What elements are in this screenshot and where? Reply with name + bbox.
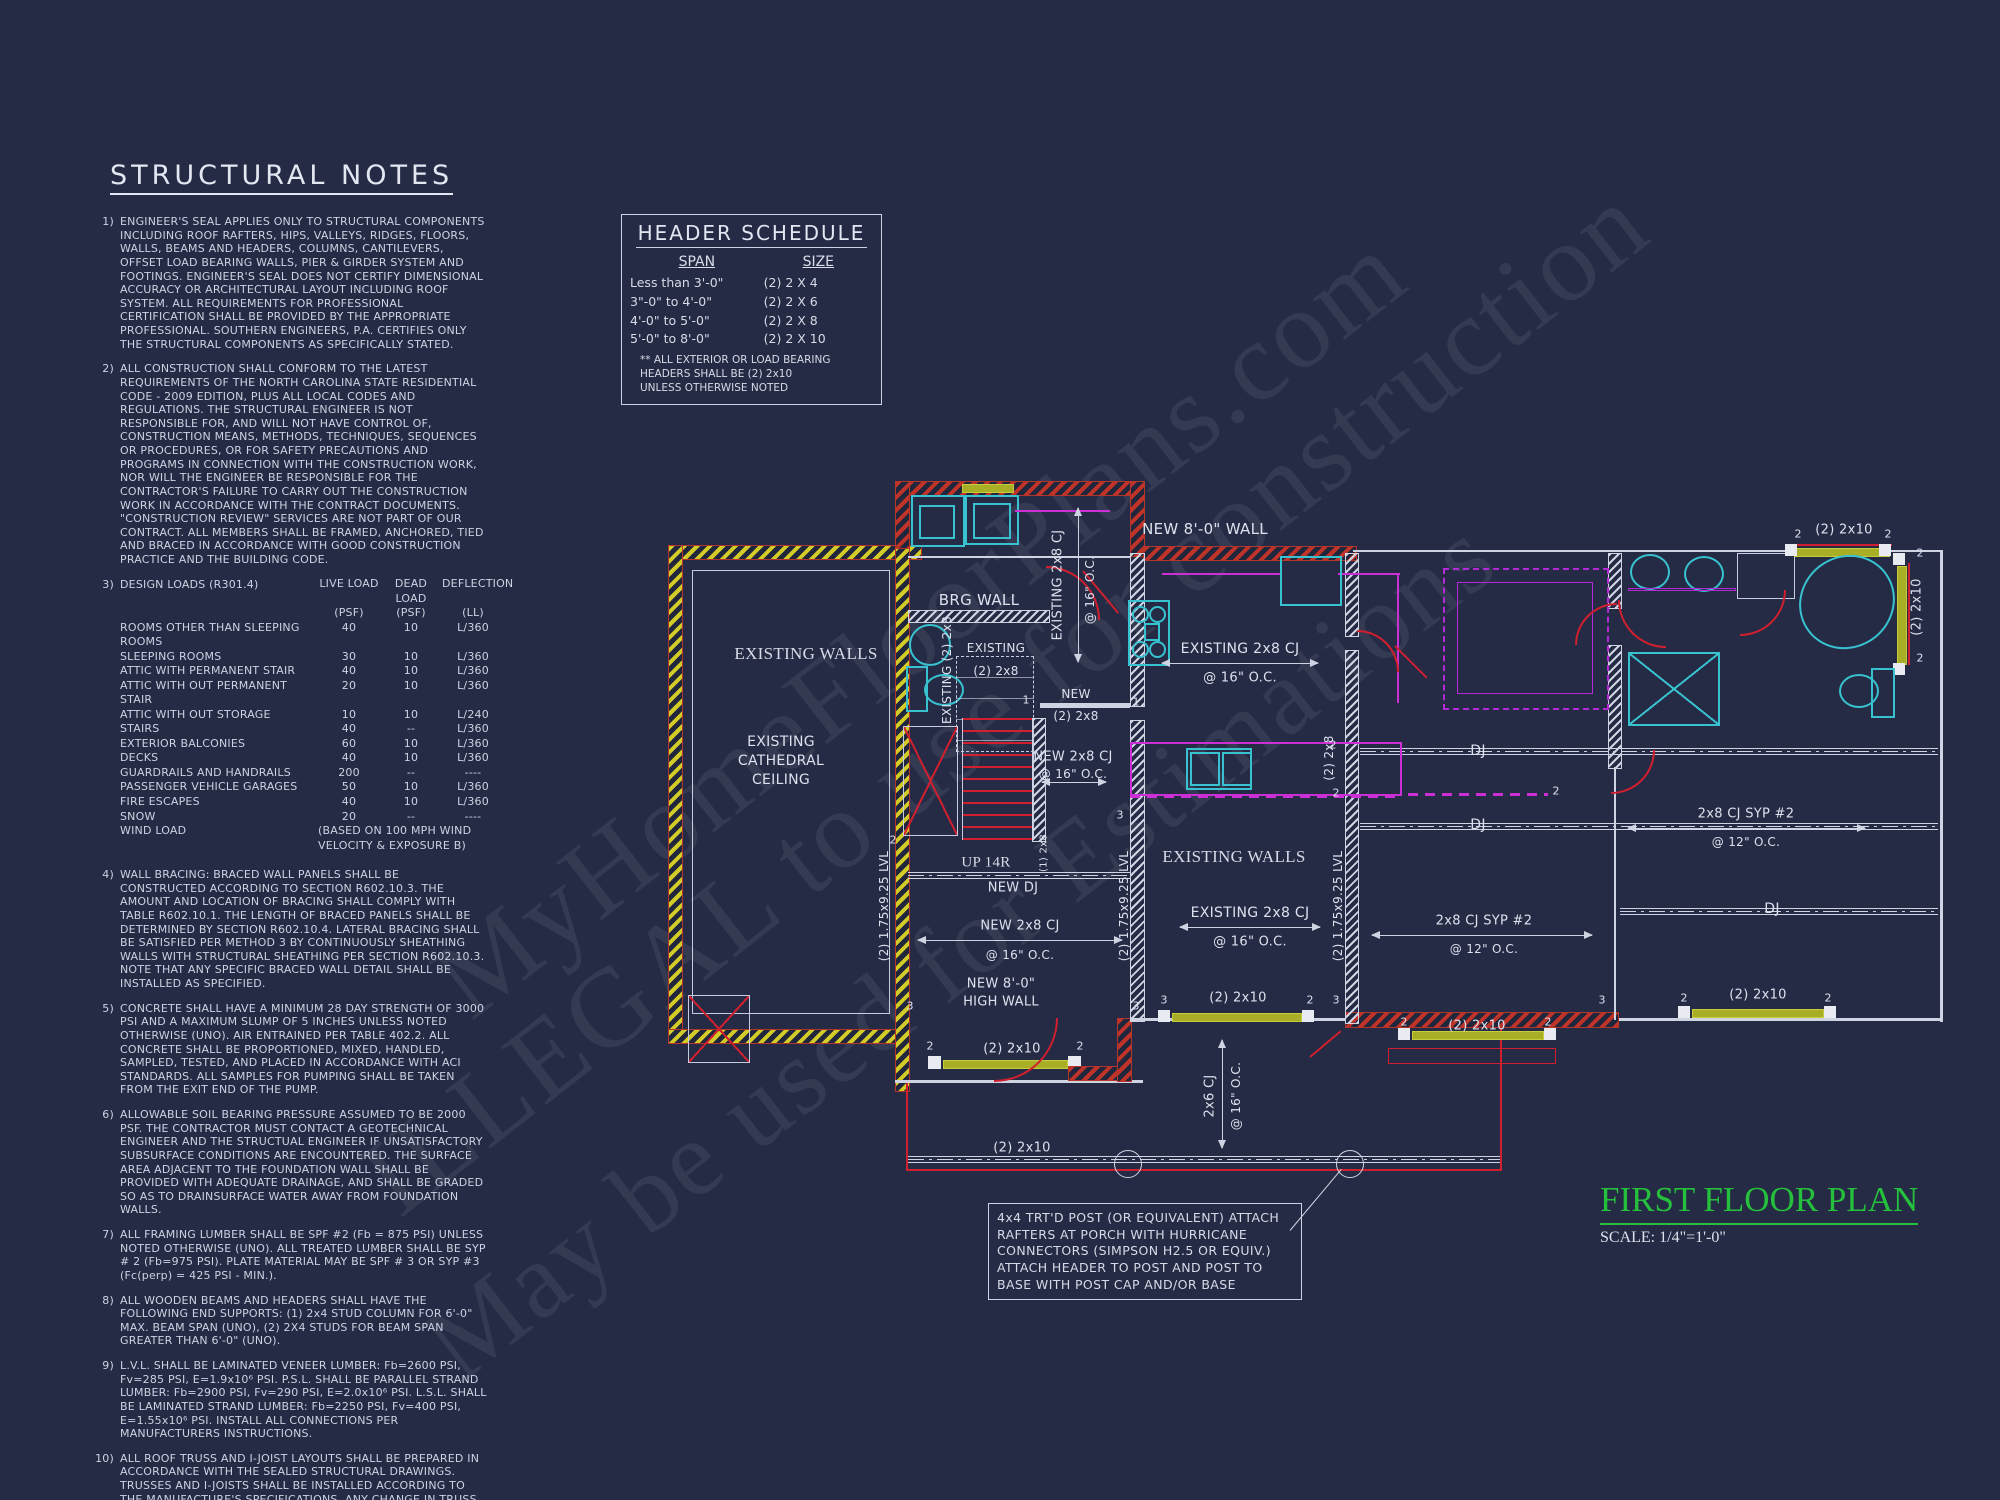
- closet-inner: [1457, 582, 1593, 694]
- porch-steps: [1388, 1048, 1556, 1064]
- plan-annotation: (2) 2x10: [1448, 1019, 1505, 1034]
- post-count-marker: 3: [1161, 994, 1168, 1007]
- plan-graphic: GUARDRAILS AND HANDRAILS: [120, 766, 318, 781]
- post-count-marker: 2: [1333, 787, 1340, 800]
- design-load-row: SLEEPING ROOMS3010L/360: [120, 650, 504, 665]
- structural-note: 10)ALL ROOF TRUSS AND I-JOIST LAYOUTS SH…: [88, 1452, 488, 1500]
- plan-graphic: 30: [318, 650, 380, 665]
- post-count-marker: 2: [1307, 994, 1314, 1007]
- plan-graphic: ATTIC WITH PERMANENT STAIR: [120, 664, 318, 679]
- plan-graphic: (2) 2 X 10: [764, 330, 873, 349]
- plan-graphic: WIND LOAD: [120, 824, 318, 853]
- note-number: 10): [88, 1452, 120, 1500]
- header-2x10: [1897, 566, 1907, 665]
- plan-graphic: --: [380, 766, 442, 781]
- design-load-row: SNOW20------: [120, 810, 504, 825]
- wall-line: [1614, 767, 1616, 1020]
- plan-annotation: NEW 2x8 CJ: [1033, 750, 1112, 765]
- plan-annotation: EXISTING 2x8 CJ: [1051, 530, 1066, 641]
- design-load-row: STAIRS40--L/360: [120, 722, 504, 737]
- porch-post: [1114, 1150, 1142, 1178]
- post-count-marker: 1: [1133, 696, 1140, 709]
- plan-annotation: 2x8 CJ SYP #2: [1436, 914, 1533, 929]
- design-load-row: ROOMS OTHER THAN SLEEPING ROOMS4010L/360: [120, 621, 504, 650]
- note-number: 9): [88, 1359, 120, 1441]
- post-square: [1158, 1010, 1170, 1022]
- plan-annotation: HIGH WALL: [963, 995, 1039, 1010]
- plan-annotation: (2) 2x10: [983, 1042, 1040, 1057]
- design-load-row: FIRE ESCAPES4010L/360: [120, 795, 504, 810]
- counter-line: [1397, 573, 1399, 703]
- design-loads-table: LIVE LOADDEAD LOADDEFLECTION(PSF)(PSF)(L…: [120, 577, 504, 853]
- post-note: 4x4 TRT'D POST (OR EQUIVALENT) ATTACH RA…: [988, 1203, 1302, 1300]
- plan-annotation: NEW 2x8 CJ: [980, 919, 1059, 934]
- plan-annotation: DJ: [1470, 743, 1486, 759]
- window-header: [962, 484, 1014, 493]
- note-text: DESIGN LOADS (R301.4)LIVE LOADDEAD LOADD…: [120, 578, 504, 857]
- design-load-row: GUARDRAILS AND HANDRAILS200------: [120, 766, 504, 781]
- plan-graphic: 10: [380, 751, 442, 766]
- wall-existing: [668, 545, 922, 560]
- post-square: [1893, 553, 1905, 565]
- note-text: ALLOWABLE SOIL BEARING PRESSURE ASSUMED …: [120, 1108, 488, 1217]
- plan-graphic: PASSENGER VEHICLE GARAGES: [120, 780, 318, 795]
- plan-graphic: (PSF): [318, 606, 380, 621]
- stair-x-box: [688, 995, 750, 1063]
- counter-line: [1015, 510, 1110, 512]
- header-schedule-title: HEADER SCHEDULE: [636, 221, 867, 248]
- post-square: [1398, 1028, 1410, 1040]
- plan-graphic: 40: [318, 795, 380, 810]
- plan-graphic: ATTIC WITH OUT PERMANENT STAIR: [120, 679, 318, 708]
- structural-note: 6)ALLOWABLE SOIL BEARING PRESSURE ASSUME…: [88, 1108, 488, 1217]
- post-count-marker: 2: [1825, 992, 1832, 1005]
- note-number: 1): [88, 215, 120, 351]
- plan-graphic: 10: [380, 795, 442, 810]
- wall-interior: [1345, 650, 1359, 1024]
- post-square: [1302, 1010, 1314, 1022]
- structural-note: 3)DESIGN LOADS (R301.4)LIVE LOADDEAD LOA…: [88, 578, 488, 857]
- header-schedule-rows: Less than 3'-0"(2) 2 X 43"-0" to 4'-0"(2…: [630, 274, 873, 349]
- plan-annotation: (2) 2x8: [1053, 709, 1098, 723]
- post-count-marker: 2: [1401, 1016, 1408, 1029]
- note-number: 2): [88, 362, 120, 566]
- beam-line: [1040, 703, 1130, 708]
- plan-graphic: [1627, 824, 1636, 832]
- note-number: 4): [88, 868, 120, 991]
- plan-graphic: (BASED ON 100 MPH WIND VELOCITY & EXPOSU…: [318, 824, 504, 853]
- toilet-tank: [1871, 668, 1895, 718]
- wall-line: [1940, 550, 1943, 1022]
- plan-annotation: @ 16" O.C.: [1213, 935, 1287, 950]
- header-schedule-footnote: ** ALL EXTERIOR OR LOAD BEARING HEADERS …: [640, 353, 873, 396]
- plan-graphic: Less than 3'-0": [630, 274, 764, 293]
- plan-annotation: EXISTING (2) 2x8: [940, 616, 954, 724]
- post-count-marker: 2: [1885, 528, 1892, 541]
- note-text: ALL WOODEN BEAMS AND HEADERS SHALL HAVE …: [120, 1294, 488, 1349]
- plan-graphic: L/360: [442, 722, 504, 737]
- plan-graphic: 5'-0" to 8'-0": [630, 330, 764, 349]
- post-count-marker: 2: [890, 834, 897, 847]
- plan-title: FIRST FLOOR PLAN: [1600, 1180, 1918, 1225]
- plan-graphic: L/360: [442, 679, 504, 708]
- structural-notes: STRUCTURAL NOTES 1)ENGINEER'S SEAL APPLI…: [88, 160, 488, 1500]
- structural-note: 9)L.V.L. SHALL BE LAMINATED VENEER LUMBE…: [88, 1359, 488, 1441]
- plan-graphic: 10: [380, 737, 442, 752]
- plan-graphic: 20: [318, 810, 380, 825]
- post-count-marker: 2: [1917, 547, 1924, 560]
- counter: [1130, 742, 1402, 796]
- porch-beam: [908, 1156, 1500, 1163]
- extent-arrow: [1162, 663, 1318, 664]
- structural-note: 8)ALL WOODEN BEAMS AND HEADERS SHALL HAV…: [88, 1294, 488, 1349]
- plan-graphic: L/360: [442, 650, 504, 665]
- plan-graphic: [1161, 659, 1170, 667]
- plan-graphic: L/360: [442, 780, 504, 795]
- chimney-x-box: [903, 726, 958, 836]
- header-schedule-columns: SPAN SIZE: [630, 254, 873, 270]
- plan-graphic: [120, 577, 318, 606]
- notes-title: STRUCTURAL NOTES: [110, 160, 453, 195]
- plan-annotation: (2) 2x10: [1815, 523, 1872, 538]
- plan-graphic: 10: [318, 708, 380, 723]
- header-schedule-row: 4'-0" to 5'-0"(2) 2 X 8: [630, 312, 873, 331]
- plan-graphic: [1312, 923, 1321, 931]
- extent-arrow: [1222, 1040, 1223, 1148]
- porch-post: [1336, 1150, 1364, 1178]
- header-2x10: [1172, 1013, 1302, 1022]
- plan-annotation: @ 16" O.C.: [1229, 1062, 1243, 1130]
- header-schedule-row: Less than 3'-0"(2) 2 X 4: [630, 274, 873, 293]
- note-text: ALL ROOF TRUSS AND I-JOIST LAYOUTS SHALL…: [120, 1452, 488, 1500]
- plan-graphic: DECKS: [120, 751, 318, 766]
- plan-annotation: EXISTING WALLS: [734, 644, 877, 664]
- plan-graphic: 40: [318, 751, 380, 766]
- plan-annotation: (2) 1.75x9.25 LVL: [1117, 851, 1131, 962]
- plan-graphic: [1218, 1039, 1226, 1048]
- plan-graphic: [1041, 778, 1050, 786]
- post-square: [1879, 544, 1891, 556]
- design-load-row: PASSENGER VEHICLE GARAGES5010L/360: [120, 780, 504, 795]
- joist-line-new-dj: [908, 872, 1130, 879]
- stove-panel: [1144, 623, 1160, 641]
- plan-annotation: (2) 2x10: [993, 1141, 1050, 1156]
- porch-edge: [906, 1169, 1502, 1171]
- plan-graphic: 40: [318, 664, 380, 679]
- plan-graphic: 10: [380, 780, 442, 795]
- plan-annotation: NEW 8'-0": [967, 977, 1035, 992]
- note-text: WALL BRACING: BRACED WALL PANELS SHALL B…: [120, 868, 488, 991]
- plan-annotation: UP 14R: [961, 855, 1010, 872]
- plan-graphic: ----: [442, 766, 504, 781]
- porch-edge: [1500, 1020, 1502, 1170]
- plan-graphic: ROOMS OTHER THAN SLEEPING ROOMS: [120, 621, 318, 650]
- plan-graphic: DEAD LOAD: [380, 577, 442, 606]
- kitchen-sink-bowl: [1222, 752, 1252, 786]
- wall-interior: [1345, 553, 1359, 637]
- post-count-marker: 2: [1553, 785, 1560, 798]
- plan-graphic: [1310, 659, 1319, 667]
- plan-annotation: (2) 2x10: [1209, 991, 1266, 1006]
- post-count-marker: 3: [1117, 809, 1124, 822]
- plan-graphic: L/360: [442, 751, 504, 766]
- plan-graphic: LIVE LOAD: [318, 577, 380, 606]
- plan-graphic: [1074, 507, 1082, 516]
- design-load-row: DECKS4010L/360: [120, 751, 504, 766]
- plan-annotation: 2x8 CJ SYP #2: [1698, 807, 1795, 822]
- plan-graphic: [1114, 936, 1123, 944]
- door-arc: [1611, 750, 1655, 794]
- plan-annotation: EXISTING 2x8 CJ: [1181, 641, 1300, 657]
- plan-graphic: [1371, 931, 1380, 939]
- note-text: ALL CONSTRUCTION SHALL CONFORM TO THE LA…: [120, 362, 488, 566]
- plan-annotation: @ 16" O.C.: [1203, 671, 1277, 686]
- plan-graphic: L/360: [442, 664, 504, 679]
- design-load-row: EXTERIOR BALCONIES6010L/360: [120, 737, 504, 752]
- post-count-marker: 2: [927, 1040, 934, 1053]
- note-number: 7): [88, 1228, 120, 1283]
- plan-graphic: 40: [318, 621, 380, 650]
- extent-arrow: [918, 940, 1122, 941]
- dryer-drum: [973, 503, 1011, 539]
- plan-annotation: EXISTING 2x8 CJ: [1191, 905, 1310, 921]
- plan-graphic: L/240: [442, 708, 504, 723]
- size-column-header: SIZE: [764, 254, 873, 270]
- plan-annotation: (2) 2x8: [973, 664, 1018, 678]
- plan-graphic: 60: [318, 737, 380, 752]
- post-count-marker: 2: [1077, 1040, 1084, 1053]
- plan-annotation: BRG WALL: [939, 591, 1020, 609]
- wall-new: [1117, 1018, 1132, 1082]
- plan-graphic: 10: [380, 664, 442, 679]
- plan-annotation: @ 12" O.C.: [1450, 942, 1518, 956]
- extent-arrow: [1078, 508, 1079, 662]
- counter-line: [1162, 573, 1282, 575]
- plan-graphic: [120, 606, 318, 621]
- post-count-marker: 2: [1545, 1016, 1552, 1029]
- post-square: [1785, 544, 1797, 556]
- plan-graphic: --: [380, 810, 442, 825]
- burner: [1149, 641, 1166, 658]
- plan-graphic: (2) 2 X 6: [764, 293, 873, 312]
- counter-dashed: [1130, 795, 1398, 798]
- extent-arrow: [1180, 927, 1320, 928]
- header-schedule-row: 5'-0" to 8'-0"(2) 2 X 10: [630, 330, 873, 349]
- door-arc: [1740, 590, 1786, 636]
- header-schedule: HEADER SCHEDULE SPAN SIZE Less than 3'-0…: [621, 214, 882, 405]
- post-count-marker: 2: [1917, 652, 1924, 665]
- plan-annotation: NEW: [1061, 687, 1090, 701]
- note-text: ALL FRAMING LUMBER SHALL BE SPF #2 (Fb =…: [120, 1228, 488, 1283]
- plan-graphic: DEFLECTION: [442, 577, 504, 606]
- bearing-wall: [908, 610, 1050, 623]
- design-load-row: ATTIC WITH OUT STORAGE1010L/240: [120, 708, 504, 723]
- blueprint-sheet: MyHomeFloorPlans.comILLEGAL to use for c…: [0, 0, 2000, 1500]
- note-number: 6): [88, 1108, 120, 1217]
- header-schedule-row: 3"-0" to 4'-0"(2) 2 X 6: [630, 293, 873, 312]
- plan-graphic: 10: [380, 650, 442, 665]
- post-count-marker: 2: [1330, 739, 1337, 752]
- vanity-counter: [1628, 588, 1736, 591]
- note-number: 3): [88, 578, 120, 857]
- structural-note: 1)ENGINEER'S SEAL APPLIES ONLY TO STRUCT…: [88, 215, 488, 351]
- plan-graphic: [917, 936, 926, 944]
- plan-graphic: 40: [318, 722, 380, 737]
- header-2x10: [1692, 1009, 1824, 1018]
- plan-graphic: SNOW: [120, 810, 318, 825]
- plan-graphic: LIVE LOADDEAD LOADDEFLECTION: [120, 577, 504, 606]
- plan-annotation: @ 16" O.C.: [1083, 556, 1097, 624]
- post-count-marker: 3: [907, 1000, 914, 1013]
- plan-scale: SCALE: 1/4"=1'-0": [1600, 1229, 1918, 1247]
- post-square: [1824, 1006, 1836, 1018]
- plan-graphic: SLEEPING ROOMS: [120, 650, 318, 665]
- plan-annotation: (2) 2x10: [1729, 988, 1786, 1003]
- post-count-marker: 3: [1599, 994, 1606, 1007]
- plan-graphic: 4'-0" to 5'-0": [630, 312, 764, 331]
- post-count-marker: 3: [1333, 994, 1340, 1007]
- washer-drum: [919, 505, 955, 539]
- note-text: ENGINEER'S SEAL APPLIES ONLY TO STRUCTUR…: [120, 215, 488, 351]
- post-count-marker: 3: [1133, 1000, 1140, 1013]
- burner: [1132, 606, 1149, 623]
- plan-annotation: DJ: [1764, 901, 1780, 917]
- plan-graphic: ATTIC WITH OUT STORAGE: [120, 708, 318, 723]
- note-text: CONCRETE SHALL HAVE A MINIMUM 28 DAY STR…: [120, 1002, 488, 1097]
- plan-annotation: NEW DJ: [988, 881, 1039, 896]
- extent-arrow: [1628, 828, 1865, 829]
- plan-graphic: L/360: [442, 621, 504, 650]
- wall-new: [895, 481, 910, 549]
- plan-graphic: [1074, 654, 1082, 663]
- plan-graphic: [1218, 1140, 1226, 1149]
- plan-annotation: CATHEDRAL: [738, 753, 824, 769]
- plan-graphic: 200: [318, 766, 380, 781]
- structural-note: 4)WALL BRACING: BRACED WALL PANELS SHALL…: [88, 868, 488, 991]
- structural-note: 5)CONCRETE SHALL HAVE A MINIMUM 28 DAY S…: [88, 1002, 488, 1097]
- room-outline: [692, 570, 890, 1014]
- plan-graphic: 10: [380, 679, 442, 708]
- plan-graphic: --: [380, 722, 442, 737]
- plan-annotation: @ 16" O.C.: [986, 948, 1054, 962]
- fridge: [1280, 556, 1342, 606]
- note-number: 5): [88, 1002, 120, 1097]
- header-edge: [1790, 544, 1892, 546]
- design-load-row: ATTIC WITH OUT PERMANENT STAIR2010L/360: [120, 679, 504, 708]
- plan-graphic: (PSF): [380, 606, 442, 621]
- plan-graphic: 10: [380, 621, 442, 650]
- counter-dashed: [1408, 793, 1548, 796]
- plan-annotation: (2) 1.75x9.25 LVL: [1331, 851, 1345, 962]
- span-column-header: SPAN: [630, 254, 764, 270]
- door-arc: [1618, 600, 1666, 648]
- plan-title-block: FIRST FLOOR PLAN SCALE: 1/4"=1'-0": [1600, 1180, 1918, 1247]
- plan-annotation: NEW 8'-0" WALL: [1142, 520, 1268, 538]
- plan-annotation: DJ: [1470, 817, 1486, 833]
- plan-annotation: EXISTING: [967, 641, 1026, 655]
- plan-graphic: L/360: [442, 737, 504, 752]
- plan-graphic: STAIRS: [120, 722, 318, 737]
- plan-graphic: [1857, 824, 1866, 832]
- post-count-marker: 2: [1681, 992, 1688, 1005]
- plan-graphic: 3"-0" to 4'-0": [630, 293, 764, 312]
- plan-annotation: (2) 2x10: [1910, 578, 1925, 635]
- structural-note: 2)ALL CONSTRUCTION SHALL CONFORM TO THE …: [88, 362, 488, 566]
- plan-graphic: 20: [318, 679, 380, 708]
- vanity-sink: [1630, 554, 1670, 590]
- plan-graphic: [1584, 931, 1593, 939]
- plan-annotation: (2) 1.75x9.25 LVL: [877, 851, 891, 962]
- kitchen-sink-bowl: [1190, 752, 1220, 786]
- notes-list: 1)ENGINEER'S SEAL APPLIES ONLY TO STRUCT…: [88, 215, 488, 1500]
- plan-graphic: [1179, 923, 1188, 931]
- plan-graphic: EXTERIOR BALCONIES: [120, 737, 318, 752]
- plan-annotation: 2x6 CJ: [1203, 1074, 1218, 1117]
- note-text: L.V.L. SHALL BE LAMINATED VENEER LUMBER:…: [120, 1359, 488, 1441]
- stairs: [962, 718, 1034, 840]
- plan-graphic: WIND LOAD(BASED ON 100 MPH WIND VELOCITY…: [120, 824, 504, 853]
- plan-graphic: 50: [318, 780, 380, 795]
- counter-line: [1338, 573, 1400, 575]
- post-square: [1678, 1006, 1690, 1018]
- plan-annotation: (1) 2x8: [1039, 834, 1050, 872]
- wall-new: [895, 481, 1145, 496]
- plan-annotation: @ 12" O.C.: [1712, 835, 1780, 849]
- plan-annotation: CEILING: [752, 772, 810, 788]
- plan-graphic: L/360: [442, 795, 504, 810]
- post-count-marker: 1: [1023, 694, 1030, 707]
- extent-arrow: [1042, 782, 1106, 783]
- plan-graphic: (LL): [442, 606, 504, 621]
- wall-existing: [668, 545, 683, 1044]
- plan-annotation: EXISTING: [747, 734, 815, 750]
- post-count-marker: 2: [1795, 528, 1802, 541]
- vanity-sink: [1684, 556, 1724, 592]
- design-load-row: ATTIC WITH PERMANENT STAIR4010L/360: [120, 664, 504, 679]
- structural-note: 7)ALL FRAMING LUMBER SHALL BE SPF #2 (Fb…: [88, 1228, 488, 1283]
- door-leaf: [1309, 1031, 1341, 1058]
- extent-arrow: [1372, 935, 1592, 936]
- plan-graphic: FIRE ESCAPES: [120, 795, 318, 810]
- burner: [1149, 606, 1166, 623]
- post-square: [928, 1056, 941, 1069]
- plan-graphic: (2) 2 X 4: [764, 274, 873, 293]
- plan-graphic: (PSF)(PSF)(LL): [120, 606, 504, 621]
- burner: [1132, 641, 1149, 658]
- plan-graphic: 10: [380, 708, 442, 723]
- shower: [1628, 652, 1720, 726]
- plan-graphic: ----: [442, 810, 504, 825]
- post-square: [1544, 1028, 1556, 1040]
- plan-graphic: (2) 2 X 8: [764, 312, 873, 331]
- note-number: 8): [88, 1294, 120, 1349]
- plan-graphic: [1098, 778, 1107, 786]
- plan-annotation: EXISTING WALLS: [1162, 847, 1305, 867]
